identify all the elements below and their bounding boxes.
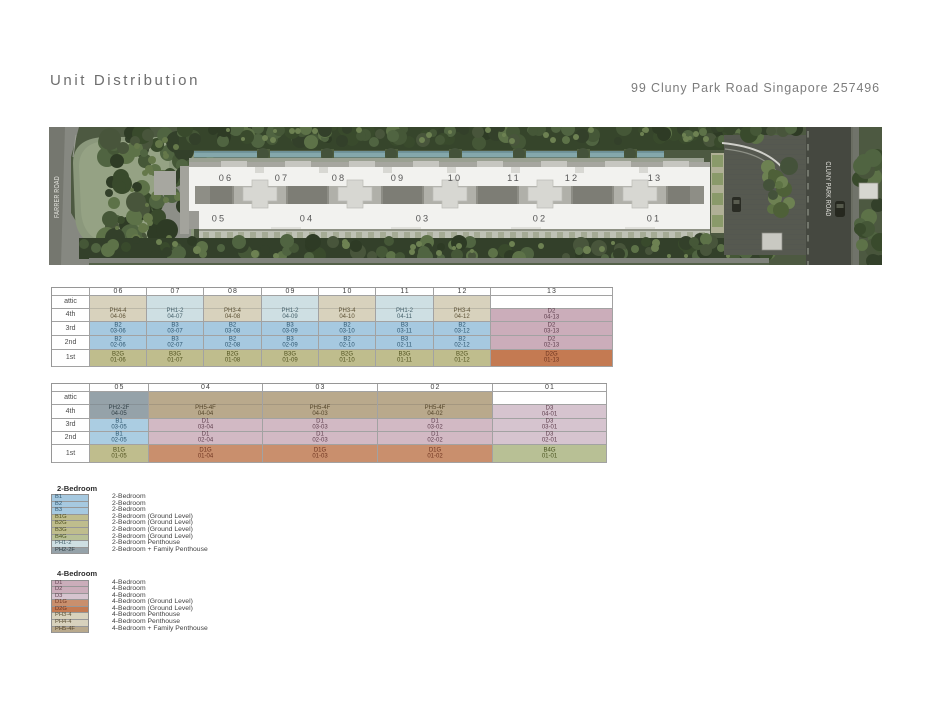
svg-text:03: 03 xyxy=(416,214,430,224)
svg-text:11: 11 xyxy=(507,173,521,183)
svg-text:07: 07 xyxy=(275,173,289,183)
svg-text:06: 06 xyxy=(219,173,233,183)
svg-text:05: 05 xyxy=(212,214,226,224)
svg-text:13: 13 xyxy=(648,173,662,183)
svg-text:12: 12 xyxy=(565,173,579,183)
svg-text:CLUNY PARK ROAD: CLUNY PARK ROAD xyxy=(824,161,832,216)
svg-text:01: 01 xyxy=(647,214,661,224)
svg-text:08: 08 xyxy=(332,173,346,183)
svg-text:09: 09 xyxy=(391,173,405,183)
svg-text:04: 04 xyxy=(300,214,314,224)
svg-text:FARRER ROAD: FARRER ROAD xyxy=(53,176,61,218)
svg-text:02: 02 xyxy=(533,214,547,224)
svg-text:10: 10 xyxy=(448,173,462,183)
